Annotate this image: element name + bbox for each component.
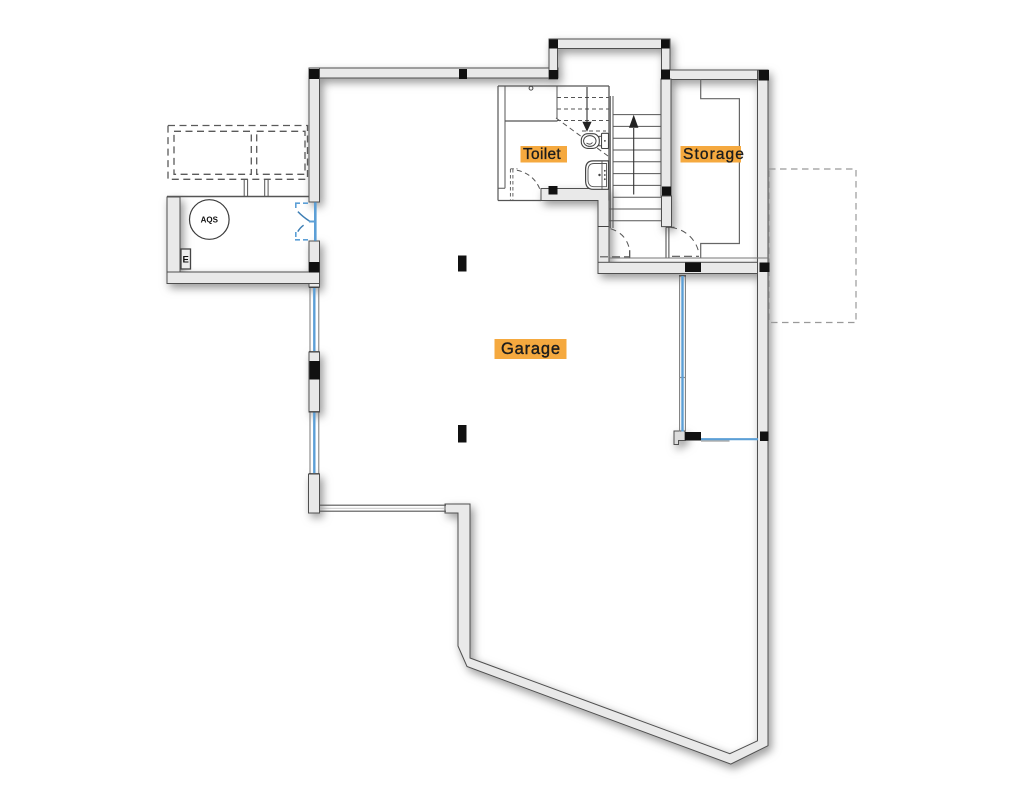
- svg-text:Toilet: Toilet: [523, 146, 561, 163]
- svg-text:AQS: AQS: [201, 215, 219, 224]
- svg-text:Storage: Storage: [683, 146, 745, 163]
- svg-text:Garage: Garage: [501, 340, 561, 358]
- svg-text:E: E: [183, 255, 189, 266]
